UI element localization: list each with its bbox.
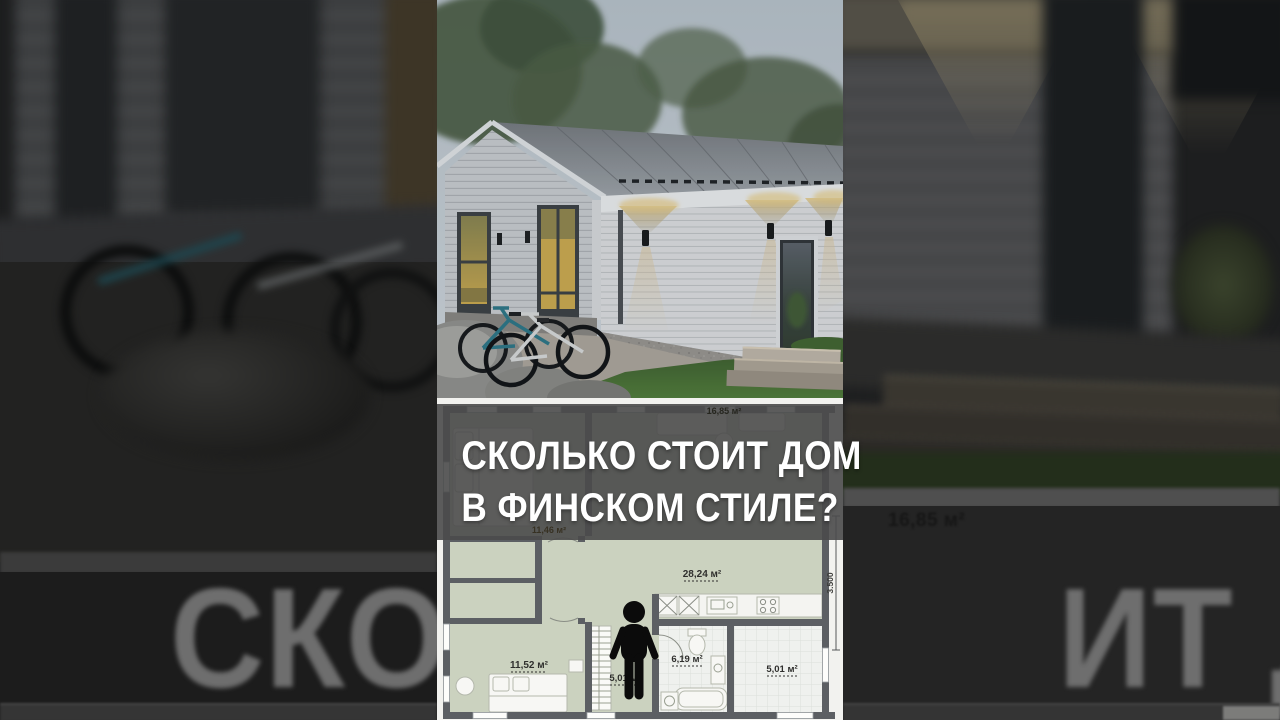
background-big-text-right: ИТ ДОМ bbox=[1058, 568, 1280, 710]
title-line-1: СКОЛЬКО СТОИТ ДОМ bbox=[461, 434, 818, 478]
plan-total-area-label: 16,85 м² bbox=[689, 406, 759, 416]
bg-window-wide bbox=[165, 0, 320, 218]
bg-bottom-light-strip bbox=[1223, 706, 1280, 720]
label-living: 28,24 м² bbox=[683, 569, 722, 580]
dusk-vignette bbox=[437, 0, 843, 398]
bg-plant bbox=[1173, 225, 1273, 345]
background-area-label: 16,85 м² bbox=[888, 510, 965, 532]
video-frame: СКОЛЬ 16,85 м² ИТ ДОМ bbox=[0, 0, 1280, 720]
bg-gray-band-right bbox=[843, 488, 1280, 508]
label-bathroom: 6,19 м² bbox=[671, 654, 702, 665]
label-bedroom-bottom: 11,52 м² bbox=[510, 660, 549, 671]
house-render bbox=[437, 0, 843, 398]
background-blur-right: 16,85 м² ИТ ДОМ bbox=[843, 0, 1280, 720]
plan-dimension-label: 3.500 bbox=[825, 572, 835, 594]
background-blur-left: СКОЛЬ bbox=[0, 0, 437, 720]
bg-window-dark bbox=[55, 0, 117, 240]
bg-window-dark-r bbox=[1173, 0, 1280, 100]
label-storage-right: 5,01 м² bbox=[766, 664, 797, 675]
bg-bottom-band-right bbox=[843, 703, 1280, 720]
title-line-2: В ФИНСКОМ СТИЛЕ? bbox=[461, 486, 818, 530]
bg-rock bbox=[100, 330, 370, 460]
bg-bottom-band-left bbox=[0, 703, 437, 720]
bedroom-top-area-label: 11,46 м² bbox=[521, 525, 577, 535]
background-big-text-left: СКОЛЬ bbox=[170, 568, 437, 710]
video-content-column: 28,24 м² 11,52 м² 5,01 м² 6,19 м² 5,01 м… bbox=[437, 0, 843, 720]
title-overlay: 16,85 м² СКОЛЬКО СТОИТ ДОМ В ФИНСКОМ СТИ… bbox=[437, 404, 843, 540]
